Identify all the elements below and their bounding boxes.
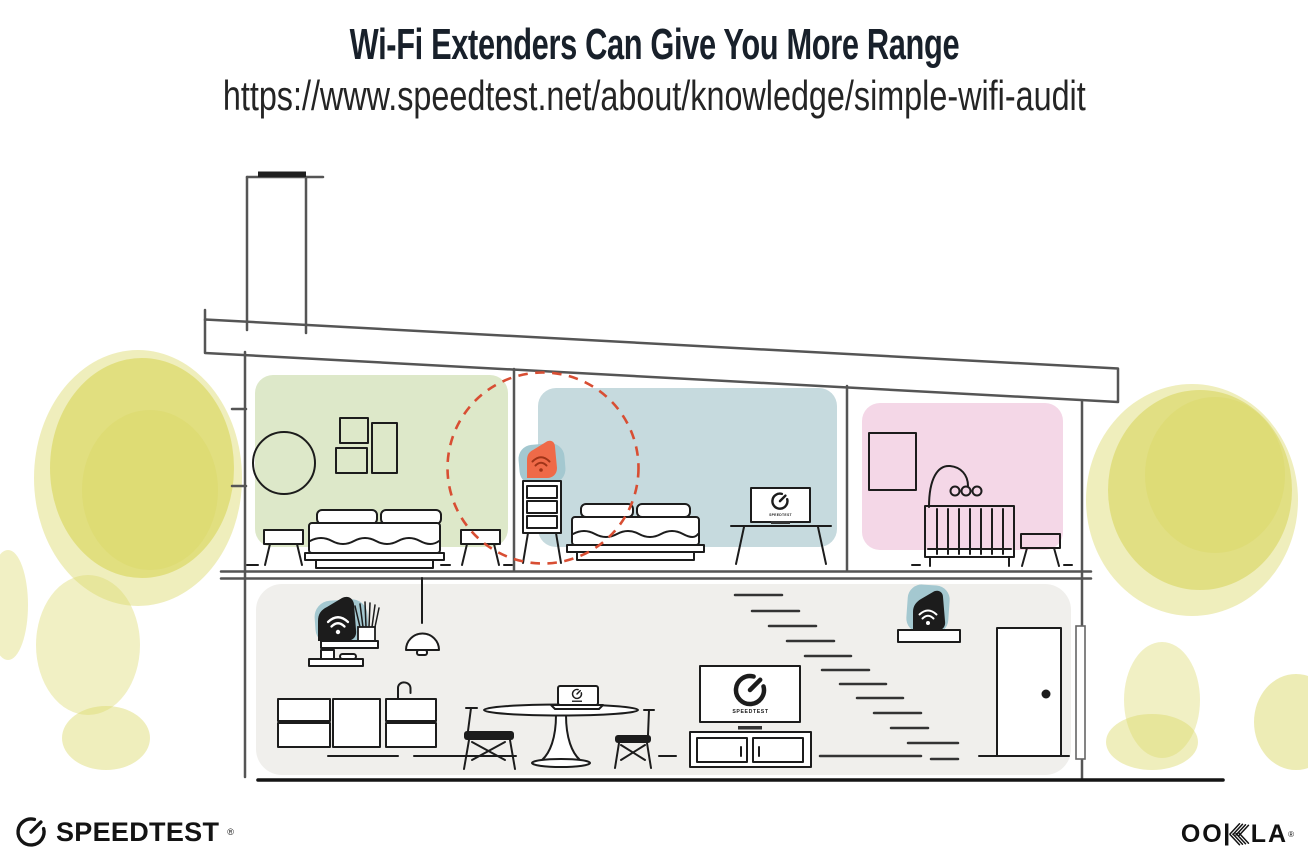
dresser [523, 481, 561, 563]
nightstand-left [264, 530, 303, 565]
speedtest-gauge-icon [14, 815, 48, 849]
shelf-top [321, 641, 378, 648]
ookla-oo: OO [1181, 820, 1224, 849]
laptop [551, 686, 603, 709]
house-illustration: SPEEDTEST [0, 0, 1308, 861]
speedtest-logo: SPEEDTEST ® [14, 815, 234, 849]
chimney [247, 172, 323, 334]
tv-label: SPEEDTEST [769, 513, 792, 517]
ookla-la: LA [1251, 820, 1288, 849]
nursery-pink-wall [862, 403, 1063, 550]
downspout [1076, 626, 1085, 759]
nightstand-right [461, 530, 500, 565]
subtitle-url: https://www.speedtest.net/about/knowledg… [223, 72, 1086, 120]
speedtest-wordmark: SPEEDTEST [56, 817, 219, 848]
stair-shelf [898, 630, 960, 642]
wifi-extender-upstairs [517, 441, 566, 486]
ookla-hatched-k-icon [1225, 823, 1250, 846]
registered-mark: ® [1288, 830, 1294, 839]
tv-living-room: SPEEDTEST [690, 666, 811, 767]
media-console [690, 732, 811, 767]
ookla-logo: OO LA ® [1181, 820, 1294, 849]
bed-green [305, 510, 444, 568]
tv-label: SPEEDTEST [732, 709, 768, 715]
cup [321, 650, 334, 659]
chimney-cap [258, 172, 306, 178]
bowl [340, 654, 356, 659]
door-knob [1042, 690, 1051, 699]
shelf-bottom [309, 659, 363, 666]
header: Wi-Fi Extenders Can Give You More Range … [0, 0, 1308, 120]
registered-mark: ® [227, 827, 234, 837]
tree-blob-right [1086, 384, 1308, 770]
tree-blob-left [0, 350, 242, 770]
page-title: Wi-Fi Extenders Can Give You More Range [349, 20, 959, 70]
